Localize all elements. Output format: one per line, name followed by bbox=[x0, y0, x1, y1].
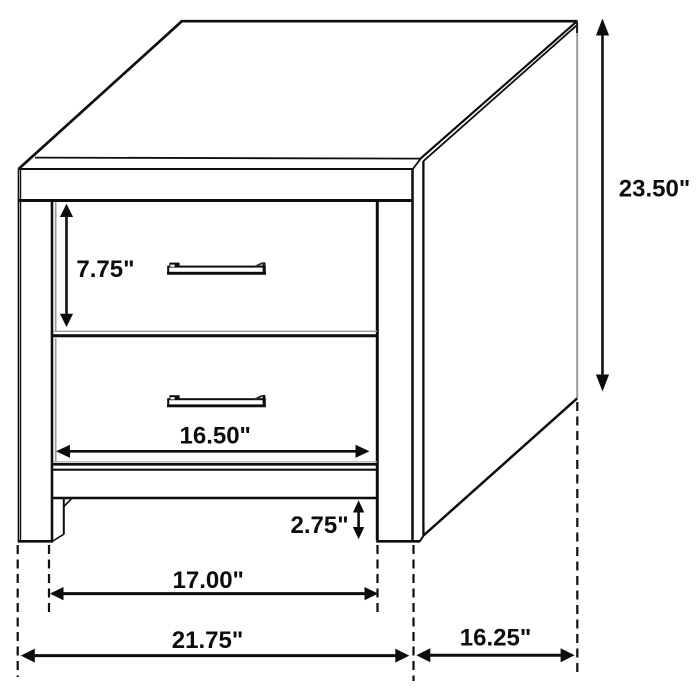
svg-text:21.75": 21.75" bbox=[172, 627, 243, 654]
svg-text:2.75": 2.75" bbox=[291, 512, 349, 539]
svg-text:16.50": 16.50" bbox=[180, 423, 251, 450]
svg-text:7.75": 7.75" bbox=[76, 256, 134, 283]
svg-text:16.25": 16.25" bbox=[460, 624, 531, 651]
svg-text:23.50": 23.50" bbox=[619, 175, 690, 202]
svg-text:17.00": 17.00" bbox=[173, 567, 244, 594]
